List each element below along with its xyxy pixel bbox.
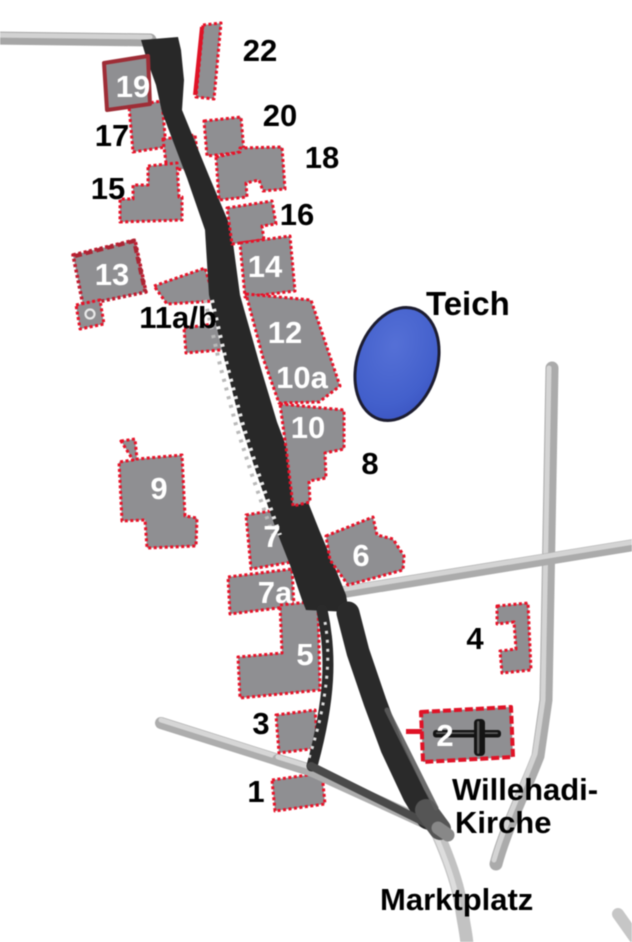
svg-text:9: 9 (150, 471, 167, 506)
svg-text:19: 19 (116, 69, 150, 104)
svg-text:11a/b: 11a/b (139, 300, 217, 335)
svg-text:20: 20 (263, 98, 297, 133)
svg-text:5: 5 (296, 637, 313, 672)
svg-text:6: 6 (352, 538, 369, 573)
svg-text:3: 3 (252, 706, 269, 741)
svg-text:17: 17 (95, 118, 129, 153)
svg-text:10a: 10a (276, 360, 328, 395)
svg-text:18: 18 (305, 140, 339, 175)
svg-text:7a: 7a (258, 575, 293, 610)
svg-text:2: 2 (436, 718, 453, 753)
svg-text:7: 7 (263, 519, 280, 554)
svg-text:4: 4 (466, 621, 484, 656)
svg-text:Teich: Teich (426, 285, 510, 322)
svg-text:13: 13 (95, 257, 129, 292)
svg-text:14: 14 (248, 249, 283, 284)
svg-text:8: 8 (361, 446, 378, 481)
svg-text:15: 15 (91, 171, 125, 206)
svg-text:Willehadi-: Willehadi- (452, 772, 598, 807)
svg-text:16: 16 (280, 197, 314, 232)
svg-text:22: 22 (243, 33, 277, 68)
svg-text:Kirche: Kirche (455, 805, 551, 840)
svg-text:10: 10 (291, 410, 325, 445)
svg-text:1: 1 (247, 774, 264, 809)
svg-text:Marktplatz: Marktplatz (380, 882, 533, 917)
svg-text:12: 12 (268, 315, 302, 350)
